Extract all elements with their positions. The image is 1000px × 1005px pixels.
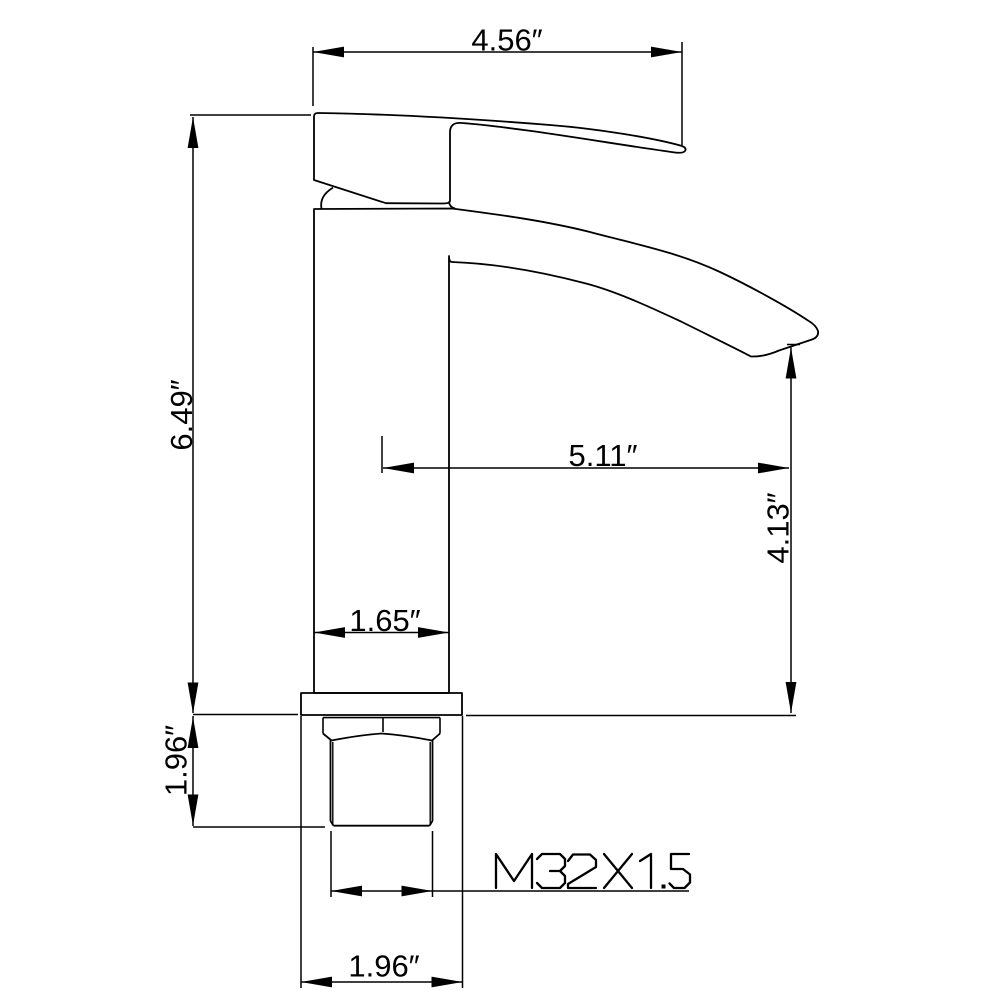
svg-text:1.65″: 1.65″ [349,603,420,638]
svg-text:6.49″: 6.49″ [164,379,199,450]
svg-text:4.56″: 4.56″ [471,23,542,58]
svg-text:4.13″: 4.13″ [761,492,796,563]
svg-text:1.96″: 1.96″ [348,949,419,984]
svg-text:1.96″: 1.96″ [159,725,194,796]
svg-text:5.11″: 5.11″ [568,438,637,473]
